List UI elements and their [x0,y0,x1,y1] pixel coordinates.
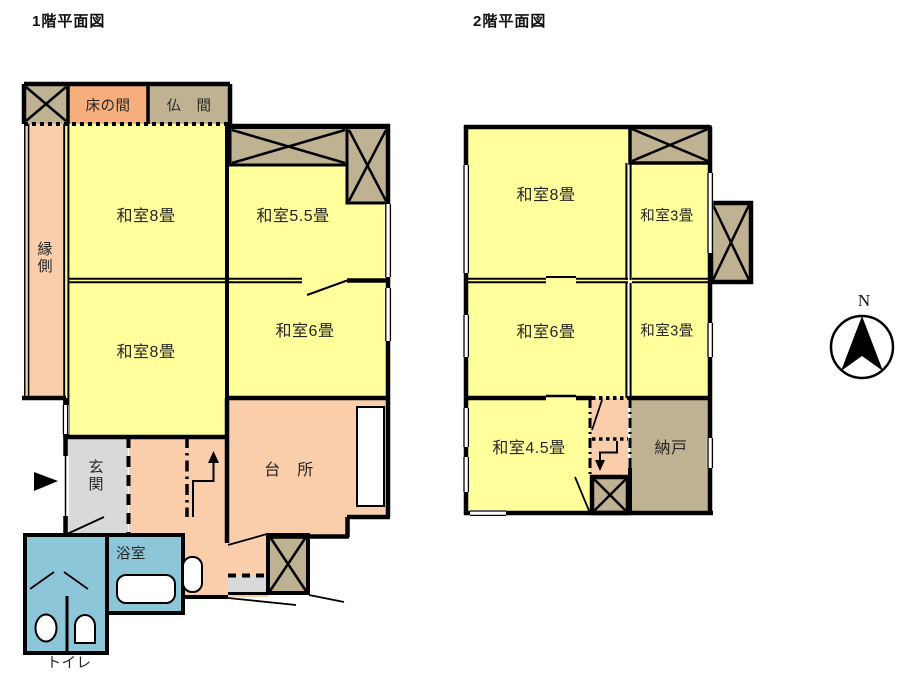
f1-kitchen-ext [227,517,348,537]
label-washitsu3-bottom: 和室3畳 [640,320,694,341]
f2-stairs [590,398,628,477]
label-washitsu45: 和室4.5畳 [492,434,565,458]
label-nando: 納戸 [654,434,687,458]
label-washitsu8-f2: 和室8畳 [517,181,576,205]
label-washitsu6-f2: 和室6畳 [517,318,576,342]
f1-closet-strip [230,128,347,165]
label-engawa: 縁側 [36,242,54,276]
label-washitsu3-top: 和室3畳 [640,205,694,226]
label-genkan: 玄関 [87,460,105,494]
f1-closet-bottom [268,535,308,593]
label-washitsu6-f1: 和室6畳 [276,317,335,341]
label-washitsu8-bottom: 和室8畳 [117,338,176,362]
f2-closet-small [592,477,628,513]
label-bathroom: 浴室 [116,543,146,564]
f1-closet-box [347,128,388,203]
compass-north-icon [831,316,893,378]
label-compass-n: N [858,291,870,311]
label-tokonoma: 床の間 [86,95,131,116]
label-toilet: トイレ [47,652,92,673]
floor1-title: 1階平面図 [32,10,105,31]
f2-closet-right [711,203,751,282]
f2-closet-top [630,127,710,163]
floorplan-canvas: 1階平面図 2階平面図 [0,0,916,681]
label-washitsu55: 和室5.5畳 [256,202,329,226]
label-butsuma: 仏 間 [167,95,212,116]
entrance-arrow-icon [34,472,58,491]
f1-room-toilet [25,535,107,653]
f1-back-door [228,576,268,593]
f1-hall-upper [129,437,227,535]
f1-annex-closet [24,86,68,124]
label-washitsu8-top: 和室8畳 [117,202,176,226]
floor2-title: 2階平面図 [473,10,546,31]
label-kitchen: 台 所 [264,456,314,480]
